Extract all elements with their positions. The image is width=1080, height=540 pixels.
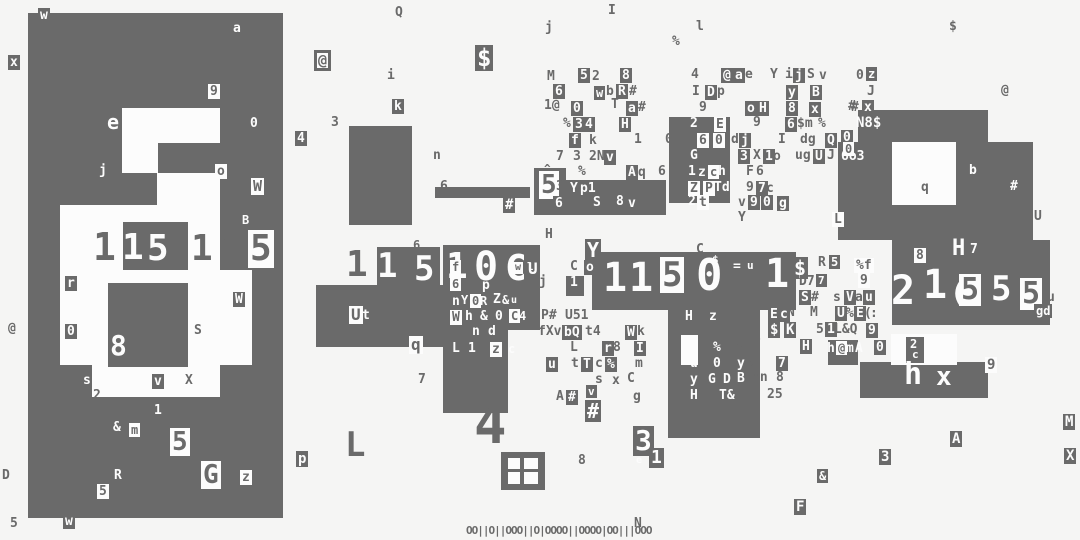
glyph: 2 [592,70,600,83]
glyph: 5 [248,230,274,268]
glyph: D [723,373,731,386]
glyph: 4 [583,117,595,132]
bottom-strip-glyphs: OO||O||OOO||O|OOOO||OOOO|OO|||OOO [466,525,652,536]
glyph: n [433,149,441,162]
glyph: 5 [170,428,190,456]
glyph: G [690,149,698,162]
glyph: 3 [573,150,581,163]
glyph: Z [493,293,501,306]
glyph: bQ [562,325,582,340]
glyph: z [866,67,877,81]
glyph: L [832,212,844,227]
glyph: D7 [799,275,815,288]
glyph: 9 [699,101,707,114]
glyph: A [626,165,638,180]
glyph: 6 [553,84,565,99]
glyph: Q [395,6,403,19]
glyph: 5 [959,274,981,306]
white-block [524,458,538,469]
glyph: F [794,499,806,515]
white-block [891,334,957,365]
glyph: & [480,310,488,323]
glyph: 8 [578,454,586,467]
glyph: t [362,309,370,322]
glyph: 0 [65,324,77,339]
glyph: % [846,307,854,320]
glyph: z [707,309,719,324]
glyph: 6 [450,277,461,291]
glyph: 9 [208,84,220,99]
glyph: 3 [331,116,339,129]
glyph: & [502,294,509,306]
glyph: 5 [97,484,109,499]
glyph: J [867,85,875,98]
glyph: # [503,197,515,213]
glyph: L&Q [834,323,857,336]
glyph: # [566,390,578,405]
glyph: r [65,276,77,291]
glyph: 0 [713,133,725,148]
glyph: G [202,213,209,225]
glyph: o [215,164,227,179]
glyph: 0 [250,117,258,130]
glyph: 8 [613,341,621,354]
glyph: W [233,292,245,307]
glyph: U [1034,210,1042,223]
glyph: S [807,68,815,81]
glyph: M [547,70,555,83]
glyph: p [482,279,490,292]
glyph: S [593,196,601,209]
glyph: 9 [985,357,997,373]
white-block [157,173,220,205]
glyph: c [766,182,774,195]
glyph: W [625,325,637,340]
glyph: 1 [629,258,653,298]
glyph: p [717,85,725,98]
glyph: 5 [414,252,434,286]
glyph: N [787,306,795,319]
glyph: w [594,86,605,100]
glyph: s [833,291,841,304]
glyph: 9 [858,273,870,288]
glyph: K [784,322,796,338]
glyph: 5 [660,257,684,293]
glyph: L [570,341,578,354]
glyph: w [63,514,75,529]
glyph: 6 [785,117,797,132]
glyph: 1 [93,228,116,266]
glyph: Y [585,239,601,261]
glyph: $ [949,20,957,33]
glyph: J [827,149,835,162]
glyph: v [738,196,746,209]
glyph: % [563,117,571,130]
glyph: # [629,85,637,98]
glyph: @ [8,322,16,335]
glyph: S [799,290,811,305]
glyph: 5 [578,68,590,83]
glyph: j [739,133,751,148]
glyph: h [718,165,726,178]
glyph: D [2,469,10,482]
glyph: Y [568,181,580,196]
glyph: x [612,374,620,387]
glyph: k [637,325,645,338]
glyph: y [690,373,698,386]
glyph: u [863,290,875,305]
glyph: v [152,374,164,389]
glyph: T [581,357,593,372]
glyph: P# [541,309,557,322]
glyph: q [409,336,423,354]
glyph: = [733,260,741,273]
glyph: X [185,374,193,387]
glyph: 1@ [544,99,560,112]
glyph: u [511,296,517,306]
glyph: I [608,4,616,17]
gray-block [316,285,447,347]
glyph: m [846,342,854,355]
glyph: : [870,307,878,320]
glyph: & [817,469,828,483]
glyph: i [785,68,793,81]
white-block [524,472,538,484]
glyph: 1 [154,404,162,417]
glyph: i [387,69,395,82]
glyph: h [904,360,922,390]
glyph: gd [1034,304,1052,318]
glyph: 0 [696,254,723,298]
glyph: h [827,342,835,355]
glyph: 5 [829,255,840,269]
glyph: 1 [377,249,397,283]
glyph: Y [738,211,746,224]
glyph: X [1064,448,1076,464]
glyph: A [556,390,564,403]
glyph: @ [1001,84,1009,97]
glyph: 6 [756,165,764,178]
white-block [892,142,956,205]
glyph: a [626,101,638,116]
glyph: 5 [991,272,1011,306]
glyph: Y [770,68,778,81]
glyph: v [819,69,827,82]
glyph: 2 [690,117,698,130]
glyph: 1 [468,342,476,355]
glyph: 0 [843,142,854,156]
white-block [508,458,520,469]
glyph: W [450,310,462,325]
glyph: A [855,342,863,355]
glyph: s [83,374,91,387]
glyph: 25 [767,388,783,401]
glyph: z [490,342,502,357]
glyph: M [1063,414,1075,430]
glyph: N8$ [856,116,881,130]
glyph: d [731,133,739,146]
glyph: 5 [746,356,754,369]
glyph: T [611,98,619,111]
glyph: R [114,469,122,482]
glyph: q [921,181,929,194]
glyph: A [950,431,962,447]
glyph: 6 [697,133,709,148]
glyph: 6 [440,180,448,193]
glyph: C [570,260,578,273]
glyph: 1 [923,265,947,305]
glyph: b [969,164,977,177]
glyph: # [811,291,819,304]
glyph: B [242,214,249,226]
glyph: U51 [565,309,588,322]
white-block [122,143,158,173]
glyph: t [571,357,579,370]
glyph: 8 [914,248,926,263]
glyph: Td [714,181,730,194]
glyph: M [810,306,818,319]
glyph: 0 [761,195,773,210]
glyph: t4 [585,325,601,338]
glyph: 4 [519,310,526,322]
glyph: a [233,22,241,35]
glyph: H [757,101,769,116]
glyph: z [698,166,706,179]
glyph: g [633,390,641,403]
glyph: h [465,310,473,323]
glyph: R [480,295,487,307]
glyph: H [800,339,812,354]
glyph: 9 [753,116,761,129]
glyph: 2 [93,389,101,402]
glyph: $ [475,45,493,71]
glyph: j [97,163,109,178]
glyph: H [545,228,553,241]
glyph: j [545,21,553,34]
glyph: 3 [738,149,750,164]
glyph: %f [854,258,874,273]
glyph: @ [721,68,733,83]
glyph: 8 [620,68,632,83]
glyph: 1 [765,254,789,294]
glyph: 1 [346,247,368,283]
glyph: % [713,341,721,354]
glyph: t [697,195,709,210]
glyph: a [855,291,863,304]
glyph: F [746,165,754,178]
glyph: fXv [538,325,561,338]
glyph: W [251,178,264,195]
glyph: I [634,341,646,356]
glyph: 6 [553,196,565,211]
glyph: v [604,150,616,165]
glyph: m [129,423,140,437]
glyph: S [194,324,202,337]
glyph: 0 [495,310,503,323]
glyph: E [714,117,726,132]
glyph: G [201,461,221,489]
glyph: 0 [856,69,864,82]
glyph: 8 [776,371,784,384]
glyph: 9 [748,195,760,210]
glyph: 4 [295,131,307,146]
glyph: w [513,262,523,274]
glyph: 7 [970,243,978,256]
glyph: w [38,8,50,23]
glyph: j [539,275,547,288]
glyph: d [488,325,496,338]
glyph: 6 [658,165,666,178]
glyph: % [818,117,826,130]
glyph: 1 [649,448,664,468]
glyph: Y [461,294,468,306]
glyph: ug [795,149,811,162]
glyph: R [818,256,826,269]
glyph: e [107,112,119,132]
glyph: 1 [634,133,642,146]
glyph: z [240,470,252,485]
glyph: 1 [191,231,213,267]
glyph: 3 [556,180,564,193]
glyph: B [810,85,822,100]
glyph: 8 [616,195,624,208]
glyph: 5 [816,323,824,336]
glyph: p [296,451,308,467]
glyph: e [636,456,642,466]
white-block [508,472,520,484]
glyph: 5 [10,517,18,530]
glyph: f [450,260,461,274]
glyph: 1 [219,231,241,267]
glyph: F [753,338,761,351]
glyph: m [635,357,643,370]
glyph: # [1010,180,1018,193]
gray-block [860,362,988,398]
glyph: 2 [735,338,743,351]
glyph: U [349,306,363,324]
glyph: # [848,100,856,113]
glyph: 2 [688,195,696,208]
glyph: # [638,101,646,114]
glyph: y [786,85,798,100]
glyph: U [813,149,825,164]
glyph: B [735,371,747,386]
glyph: u [1047,291,1055,304]
glyph: p1 [580,182,596,195]
glyph: o [745,101,757,116]
glyph: f [569,133,581,148]
noise-canvas: wxa9e0joWGB115115r@0WS8svX21&m5DR5Gz5wQI… [0,0,1080,540]
glyph: o [584,260,596,275]
glyph: g [777,196,789,211]
glyph: 7 [816,274,827,287]
glyph: 1 [570,276,578,289]
glyph: I [778,133,786,146]
glyph: k [392,99,404,114]
glyph: 0 [665,133,673,146]
glyph: H [685,310,693,323]
glyph: H [619,117,631,132]
glyph: l [527,261,534,272]
glyph: e [745,68,753,81]
glyph: $m [797,117,813,130]
glyph: 5 [147,231,169,267]
glyph: u [745,259,756,272]
glyph: c [508,343,515,355]
glyph: a [733,68,745,83]
glyph: C [627,372,635,385]
glyph: 7 [556,150,564,163]
glyph: v [626,196,638,211]
glyph: H [690,389,698,402]
glyph: k [626,181,634,194]
glyph: @ [314,50,331,71]
glyph: x [8,55,20,70]
glyph: v [586,385,597,398]
gray-block [349,126,412,225]
glyph: 3 [879,449,891,465]
glyph: Mn [752,371,768,384]
glyph: % [578,165,586,178]
glyph: X [753,149,761,162]
gray-block [956,142,1033,240]
glyph: l [696,20,704,33]
gray-block [892,205,956,240]
glyph: 8 [110,332,127,360]
gray-block [435,187,530,198]
glyph: j [793,68,805,83]
glyph: # [585,400,601,422]
glyph: 7 [418,373,426,386]
glyph: 9 [866,323,878,338]
glyph: L [452,342,460,355]
glyph: n [472,325,480,338]
glyph: H [952,238,965,260]
glyph: 1 [122,230,144,266]
glyph: x [809,102,821,117]
glyph: o [773,150,781,163]
glyph: 0 [874,340,886,355]
glyph: z [690,341,698,354]
glyph: D [705,85,717,100]
glyph: 8 [786,101,798,116]
glyph: 4 [474,398,507,452]
glyph: k [589,134,597,147]
glyph: 0 [571,101,583,116]
glyph: I [692,85,700,98]
glyph: q [638,166,646,179]
glyph: 0 [713,357,721,370]
glyph: u [690,357,698,370]
glyph: % [605,357,617,372]
glyph: x [936,364,952,390]
glyph: 4 [691,68,699,81]
glyph: 2 [891,271,915,311]
glyph: 1 [603,258,627,298]
white-block [122,108,220,143]
glyph: dg [800,133,816,146]
glyph: T& [719,389,735,402]
glyph: $ [768,322,780,338]
glyph: 9 [746,181,754,194]
glyph: c [595,357,603,370]
glyph: x [862,100,874,115]
glyph: L [345,428,365,462]
glyph: % [672,35,680,48]
glyph: & [113,421,121,434]
glyph: 1 [688,165,696,178]
glyph: Q [825,133,837,148]
